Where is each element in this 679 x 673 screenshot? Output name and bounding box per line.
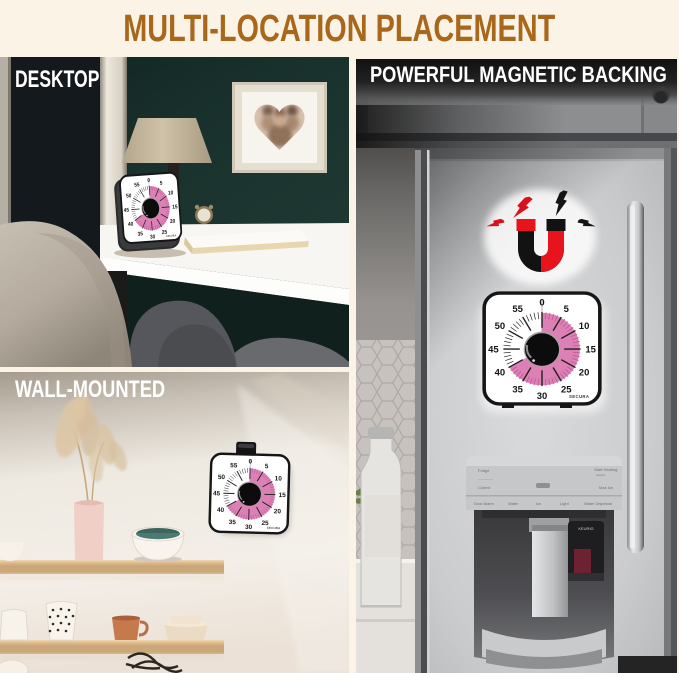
svg-text:Light: Light: [560, 501, 570, 506]
svg-text:Cubed: Cubed: [478, 485, 490, 490]
svg-text:Fridge: Fridge: [478, 468, 490, 473]
svg-text:Max Ice: Max Ice: [599, 485, 614, 490]
svg-text:KEURIG: KEURIG: [578, 526, 593, 531]
svg-text:Start Heating: Start Heating: [594, 467, 617, 472]
svg-text:Ice: Ice: [536, 501, 542, 506]
svg-text:Water Dispense: Water Dispense: [584, 501, 613, 506]
svg-text:Water: Water: [508, 501, 519, 506]
svg-text:xxxxxx: xxxxxx: [596, 473, 606, 477]
svg-text:—————: —————: [478, 477, 493, 481]
svg-text:Door Alarm: Door Alarm: [474, 501, 495, 506]
